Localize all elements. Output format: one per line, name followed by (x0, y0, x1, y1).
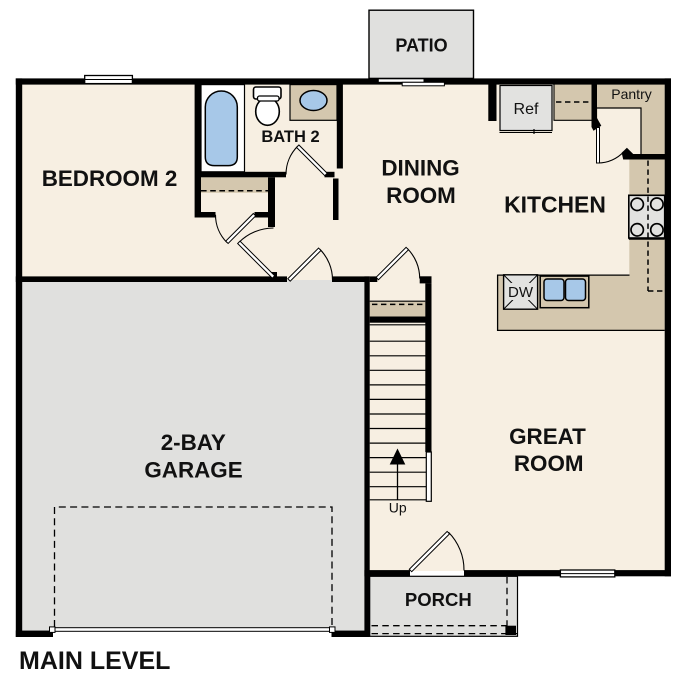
svg-text:MAIN LEVEL: MAIN LEVEL (19, 647, 170, 675)
svg-text:DINING: DINING (381, 156, 459, 181)
svg-text:BEDROOM 2: BEDROOM 2 (42, 166, 178, 191)
svg-text:ROOM: ROOM (514, 451, 584, 476)
svg-text:GREAT: GREAT (509, 424, 586, 449)
svg-text:Pantry: Pantry (611, 86, 651, 102)
svg-text:Up: Up (389, 499, 407, 515)
svg-text:DW: DW (508, 284, 534, 301)
svg-text:Ref: Ref (514, 101, 539, 118)
svg-text:PORCH: PORCH (405, 589, 472, 610)
svg-text:KITCHEN: KITCHEN (504, 191, 606, 217)
svg-text:GARAGE: GARAGE (144, 458, 242, 483)
svg-text:2-BAY: 2-BAY (161, 430, 226, 455)
svg-text:ROOM: ROOM (386, 183, 456, 208)
svg-text:BATH 2: BATH 2 (261, 128, 319, 146)
svg-text:PATIO: PATIO (395, 36, 447, 56)
